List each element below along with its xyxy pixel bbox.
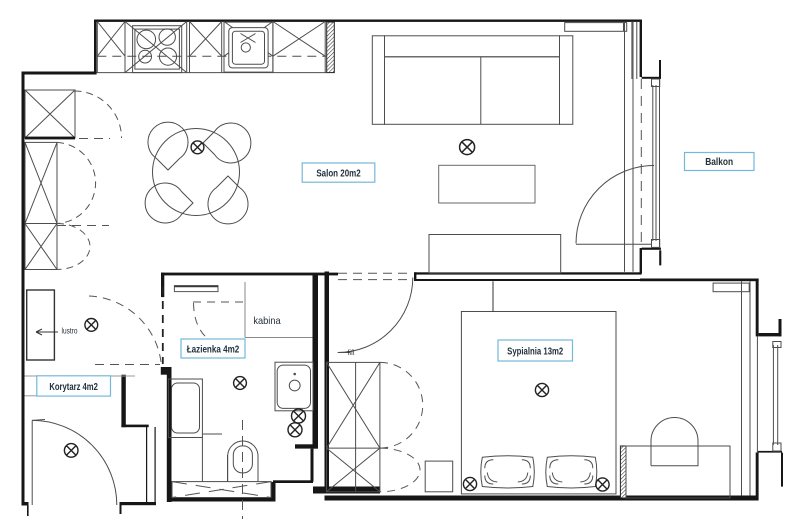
- svg-text:lustro: lustro: [61, 326, 77, 336]
- svg-text:ﬁﬂ: ﬁﬂ: [348, 350, 356, 357]
- svg-text:Balkon: Balkon: [705, 156, 733, 168]
- svg-text:kabina: kabina: [253, 316, 281, 327]
- svg-text:Korytarz 4m2: Korytarz 4m2: [49, 381, 98, 392]
- svg-text:Łazienka 4m2: Łazienka 4m2: [187, 343, 240, 354]
- svg-text:Salon 20m2: Salon 20m2: [316, 167, 360, 178]
- svg-text:Sypialnia 13m2: Sypialnia 13m2: [507, 345, 563, 356]
